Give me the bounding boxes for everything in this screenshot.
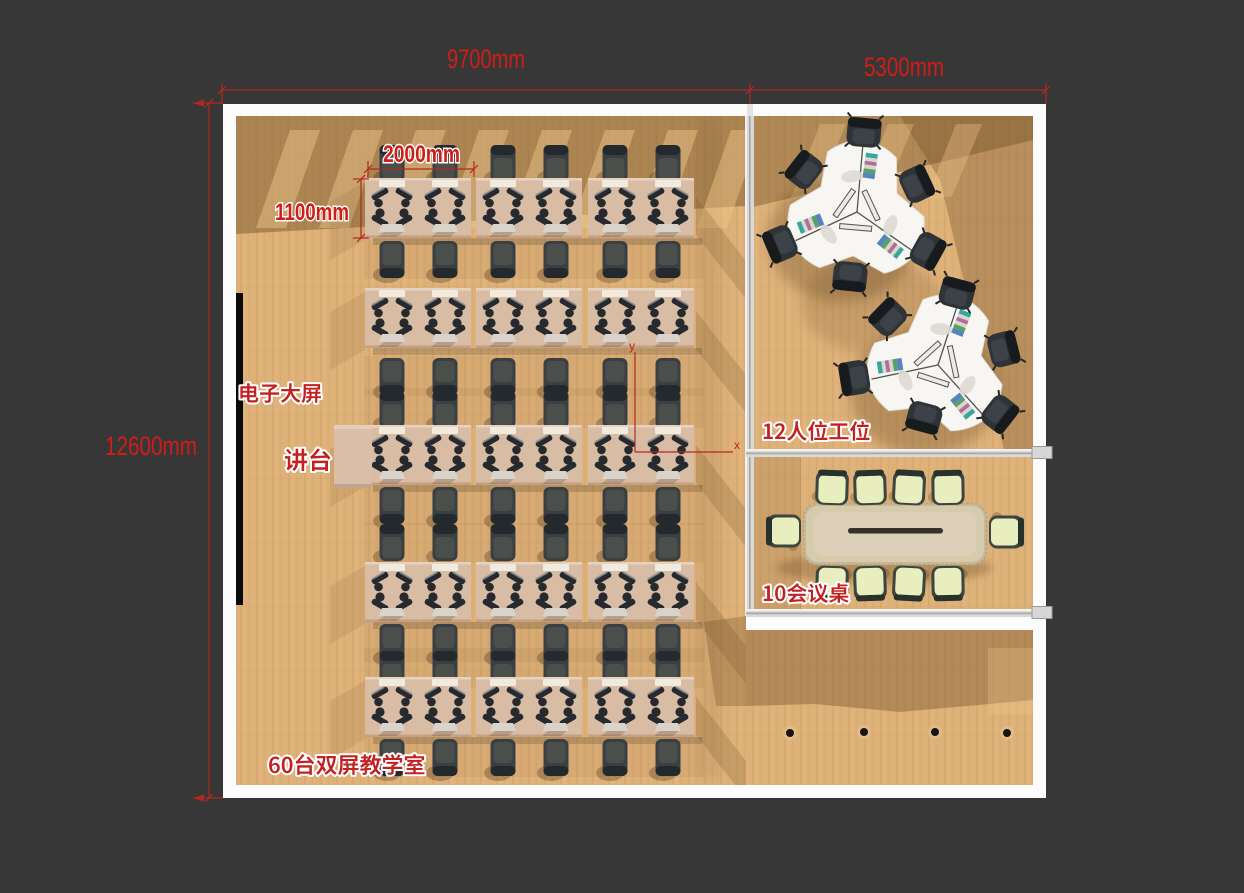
svg-text:1100mm: 1100mm bbox=[275, 199, 349, 226]
svg-text:5300mm: 5300mm bbox=[864, 52, 944, 82]
svg-text:9700mm: 9700mm bbox=[447, 44, 525, 74]
svg-text:x: x bbox=[734, 438, 740, 452]
svg-text:y: y bbox=[629, 339, 635, 353]
svg-text:12600mm: 12600mm bbox=[105, 431, 197, 461]
svg-text:2000mm: 2000mm bbox=[383, 141, 460, 168]
